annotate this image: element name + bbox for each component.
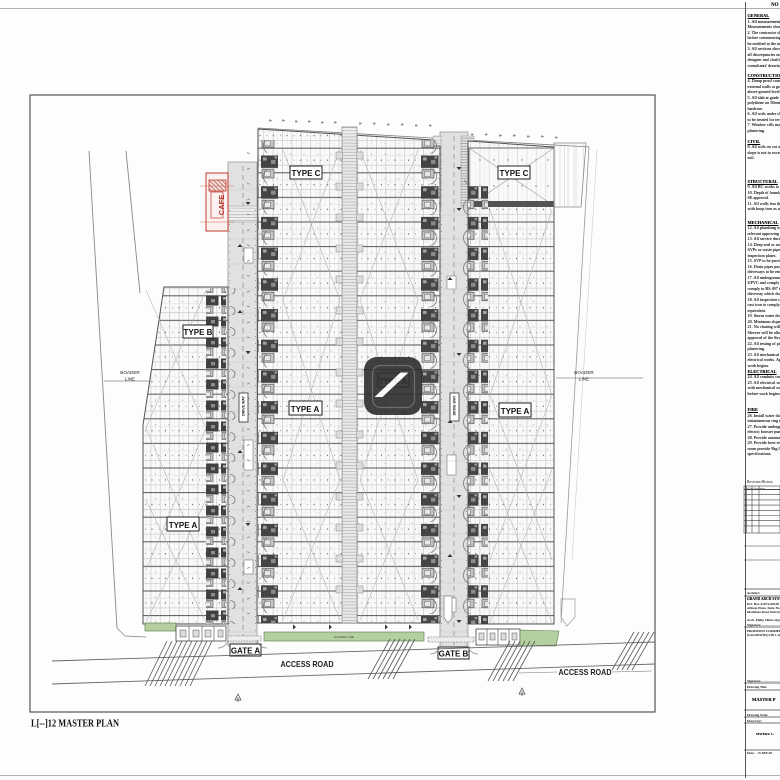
svg-text:No Date Description: No Date Description (745, 487, 766, 490)
svg-text:ACCESS LINE: ACCESS LINE (334, 635, 354, 639)
svg-text:ACCESS ROAD: ACCESS ROAD (281, 659, 334, 669)
svg-text:TYPE B: TYPE B (184, 328, 213, 337)
svg-text:LINE: LINE (579, 377, 589, 382)
svg-text:TYPE A: TYPE A (501, 407, 530, 416)
svg-text:TYPE A: TYPE A (169, 521, 198, 530)
svg-text:DRIVE WAY: DRIVE WAY (453, 395, 457, 415)
svg-text:ACCESS ROAD: ACCESS ROAD (559, 667, 612, 677)
svg-text:L[--]12 MASTER PLAN: L[--]12 MASTER PLAN (31, 718, 119, 730)
svg-text:TYPE C: TYPE C (500, 169, 529, 178)
svg-text:Revision History: Revision History (747, 480, 773, 484)
svg-text:GATE B: GATE B (439, 650, 469, 659)
svg-text:BOADER: BOADER (574, 370, 594, 375)
svg-text:LINE: LINE (125, 377, 135, 382)
svg-text:CAFE: CAFE (217, 195, 226, 215)
svg-text:TYPE A: TYPE A (291, 405, 320, 414)
svg-text:DRIVE WAY: DRIVE WAY (242, 395, 246, 415)
svg-text:TYPE C: TYPE C (292, 169, 321, 178)
svg-text:BOADER: BOADER (120, 370, 140, 375)
